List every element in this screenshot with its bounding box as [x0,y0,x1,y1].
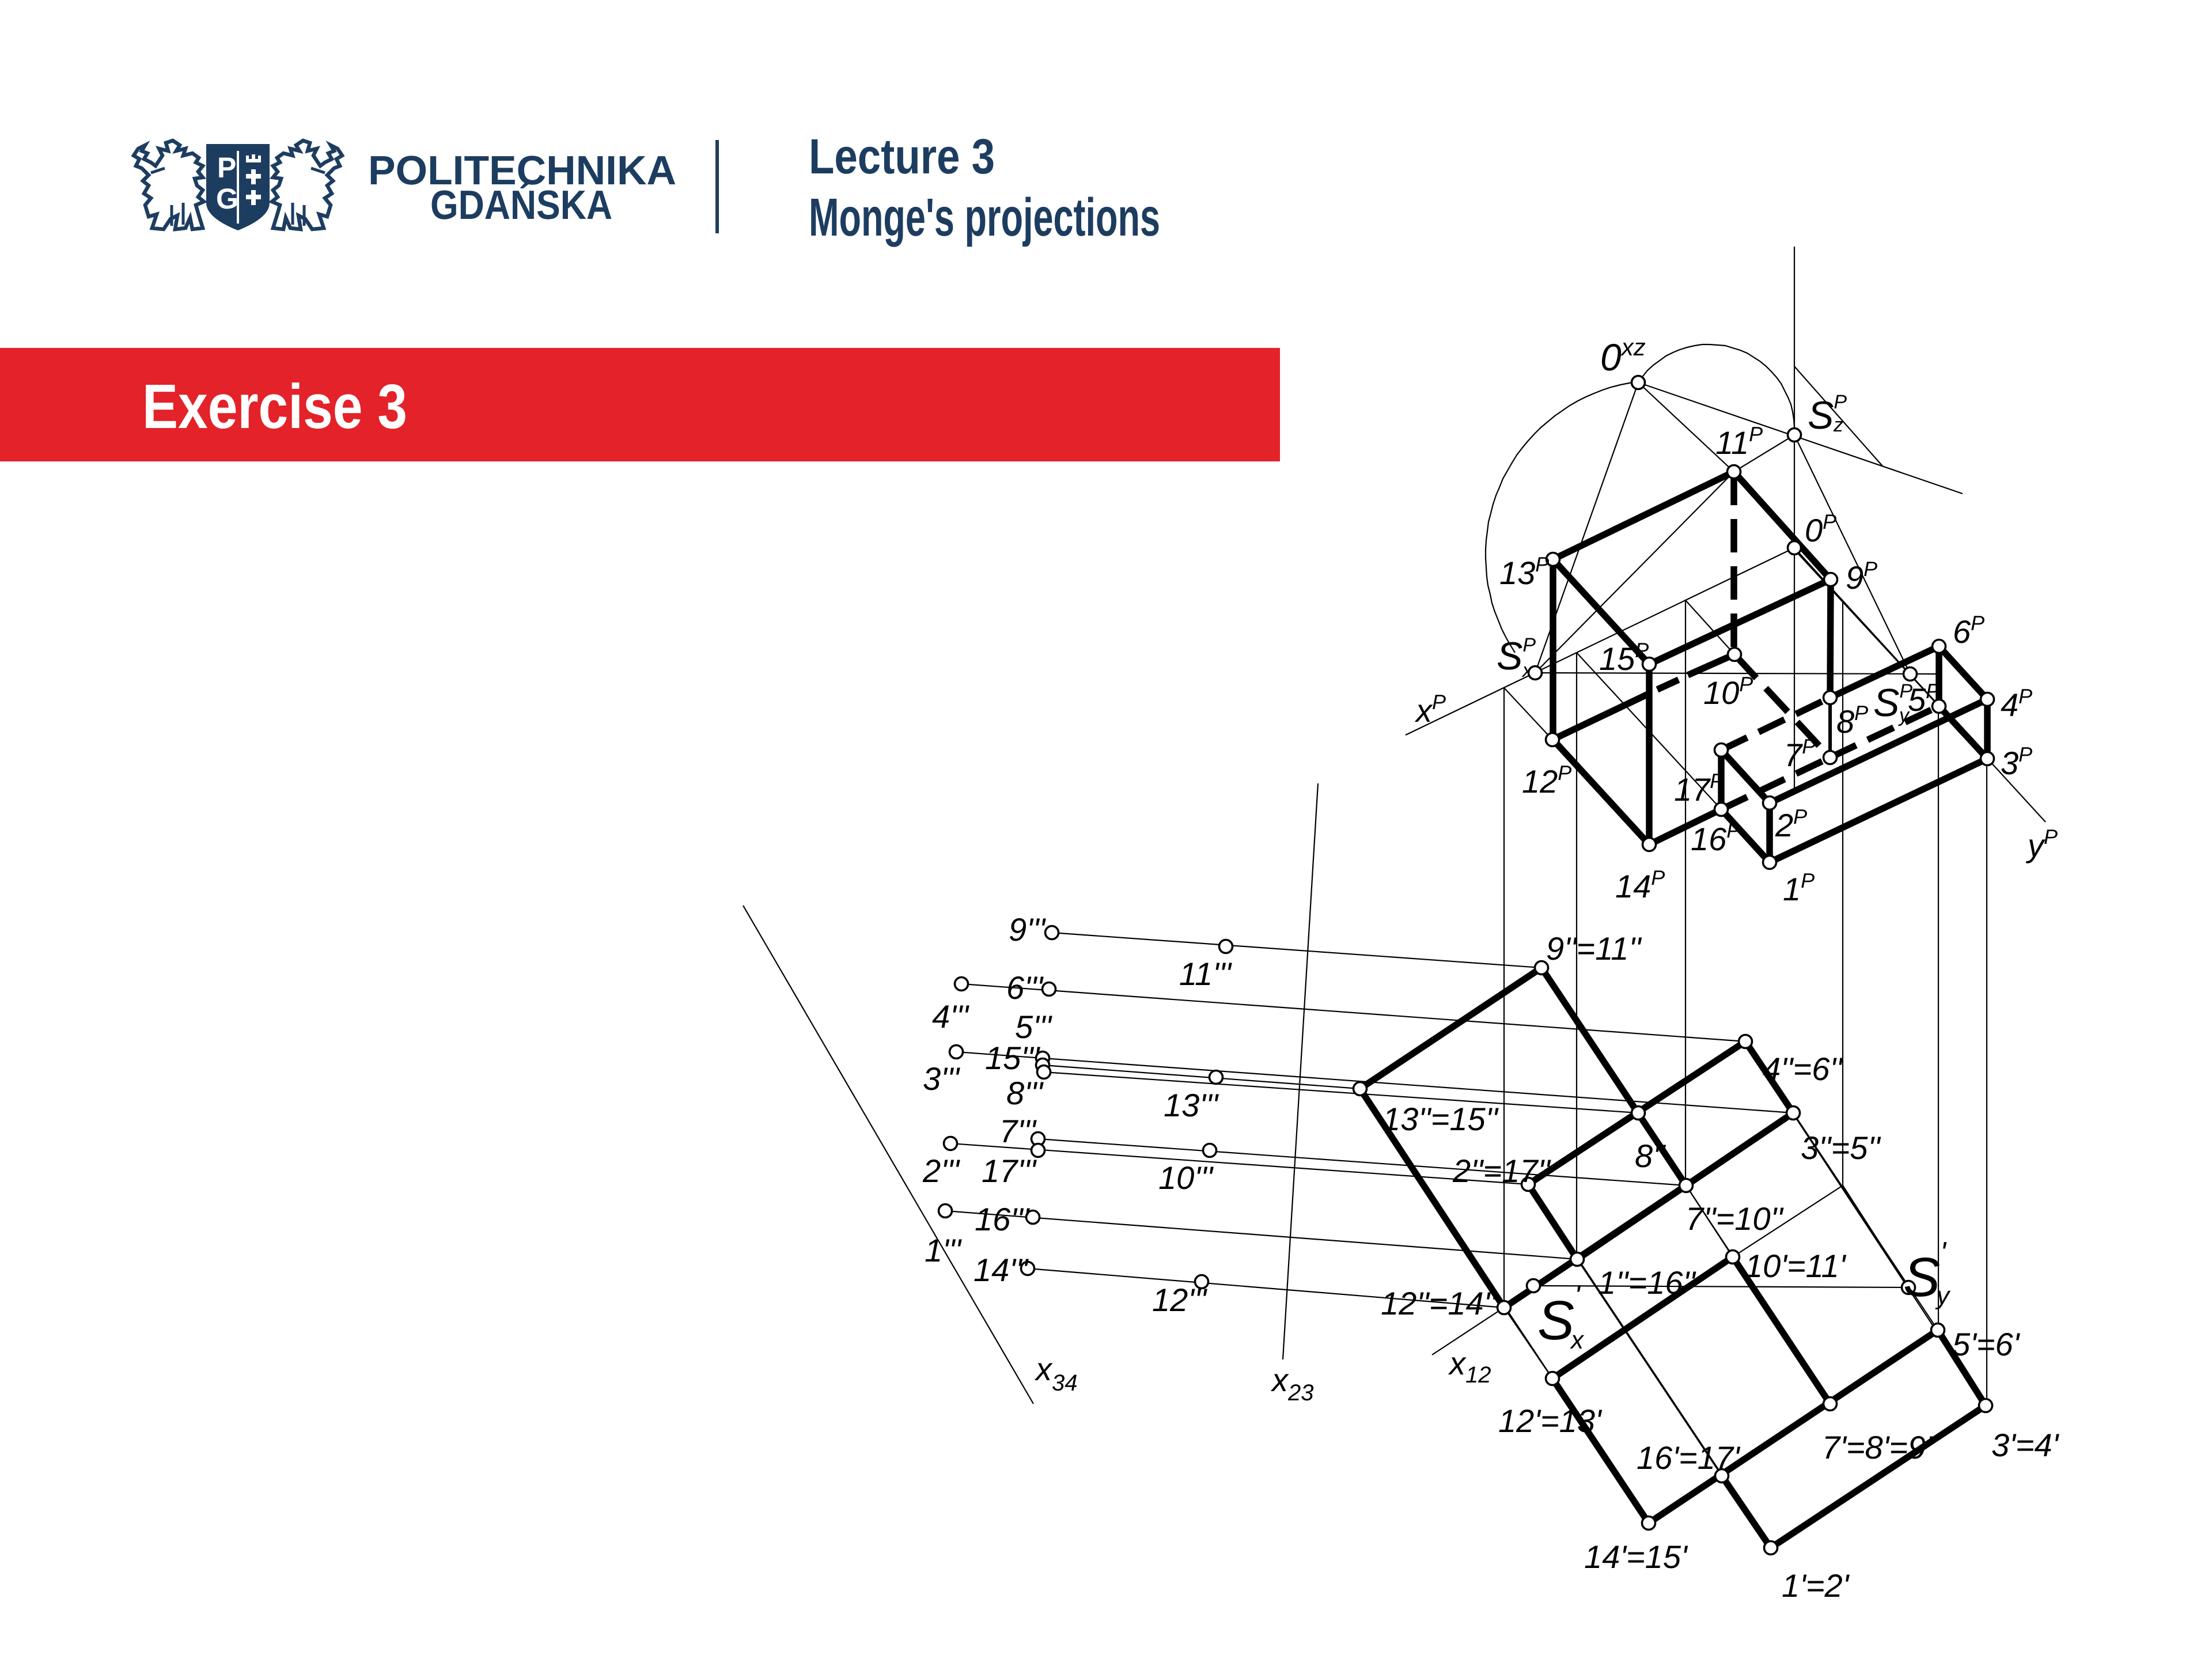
svg-text:12''=14'': 12''=14'' [1381,1285,1497,1321]
svg-text:2P: 2P [1775,805,1807,843]
svg-text:9P: 9P [1846,557,1877,596]
svg-text:7''=10'': 7''=10'' [1685,1200,1784,1237]
svg-text:16'=17': 16'=17' [1637,1440,1741,1476]
svg-text:SPz: SPz [1808,391,1847,437]
svg-text:2''=17'': 2''=17'' [1452,1153,1551,1189]
svg-text:10''': 10''' [1158,1160,1214,1196]
svg-text:3P: 3P [2001,743,2032,781]
svg-text:x34: x34 [1034,1351,1078,1396]
svg-text:13P: 13P [1499,552,1549,591]
svg-text:1P: 1P [1783,869,1815,907]
svg-text:0P: 0P [1805,510,1836,548]
svg-text:8P: 8P [1836,701,1868,740]
svg-text:17''': 17''' [982,1153,1037,1189]
svg-text:9''=11'': 9''=11'' [1546,930,1642,967]
svg-text:3''': 3''' [923,1060,961,1097]
svg-text:S'y: S'y [1903,1236,1951,1310]
svg-text:14'=15': 14'=15' [1584,1539,1688,1575]
svg-text:GDAŃSKA: GDAŃSKA [430,183,612,228]
svg-text:5'=6': 5'=6' [1952,1326,2021,1362]
svg-text:8''': 8''' [1006,1075,1044,1111]
svg-text:4P: 4P [2001,684,2032,723]
svg-text:3'=4': 3'=4' [1991,1427,2060,1463]
svg-text:10'=11': 10'=11' [1745,1248,1847,1284]
svg-text:4''=6'': 4''=6'' [1763,1051,1843,1087]
svg-text:11P: 11P [1715,422,1763,461]
svg-text:x23: x23 [1270,1362,1314,1406]
svg-text:Lecture 3: Lecture 3 [809,129,995,184]
svg-text:Exercise 3: Exercise 3 [142,372,407,442]
svg-text:11''': 11''' [1179,956,1233,992]
svg-text:1''': 1''' [925,1232,963,1268]
svg-text:6''': 6''' [1006,969,1044,1006]
svg-text:6P: 6P [1953,611,1984,650]
svg-text:12'=13': 12'=13' [1498,1403,1603,1439]
svg-text:12''': 12''' [1152,1282,1208,1318]
svg-text:7''': 7''' [999,1113,1037,1149]
svg-text:9''': 9''' [1009,911,1047,948]
svg-text:1'=2': 1'=2' [1782,1567,1850,1604]
svg-text:14''': 14''' [974,1252,1029,1288]
svg-text:SPx: SPx [1497,634,1536,681]
svg-text:0xz: 0xz [1600,334,1646,378]
svg-text:Monge's projections: Monge's projections [809,187,1160,247]
svg-text:13''': 13''' [1164,1087,1219,1123]
svg-text:15P: 15P [1599,638,1649,677]
svg-text:S'x: S'x [1537,1279,1585,1354]
svg-text:xP: xP [1414,690,1446,729]
svg-text:yP: yP [2025,825,2058,863]
svg-text:17P: 17P [1674,769,1724,808]
svg-text:8'': 8'' [1635,1138,1666,1174]
svg-text:15''': 15''' [985,1040,1041,1076]
svg-text:G: G [216,183,238,215]
svg-text:7'=8'=9': 7'=8'=9' [1822,1429,1933,1465]
svg-text:10P: 10P [1703,672,1753,711]
svg-text:16''': 16''' [975,1201,1031,1237]
svg-text:1''=16'': 1''=16'' [1598,1264,1696,1301]
svg-text:P: P [217,151,236,184]
svg-text:16P: 16P [1691,819,1740,857]
svg-text:SPy: SPy [1873,680,1912,726]
svg-text:14P: 14P [1615,866,1665,904]
svg-text:4''': 4''' [932,998,970,1035]
svg-text:12P: 12P [1522,761,1571,800]
svg-text:13''=15'': 13''=15'' [1382,1101,1499,1137]
svg-text:2''': 2''' [922,1153,961,1189]
svg-text:3''=5'': 3''=5'' [1801,1130,1881,1166]
svg-text:x12: x12 [1448,1345,1491,1388]
